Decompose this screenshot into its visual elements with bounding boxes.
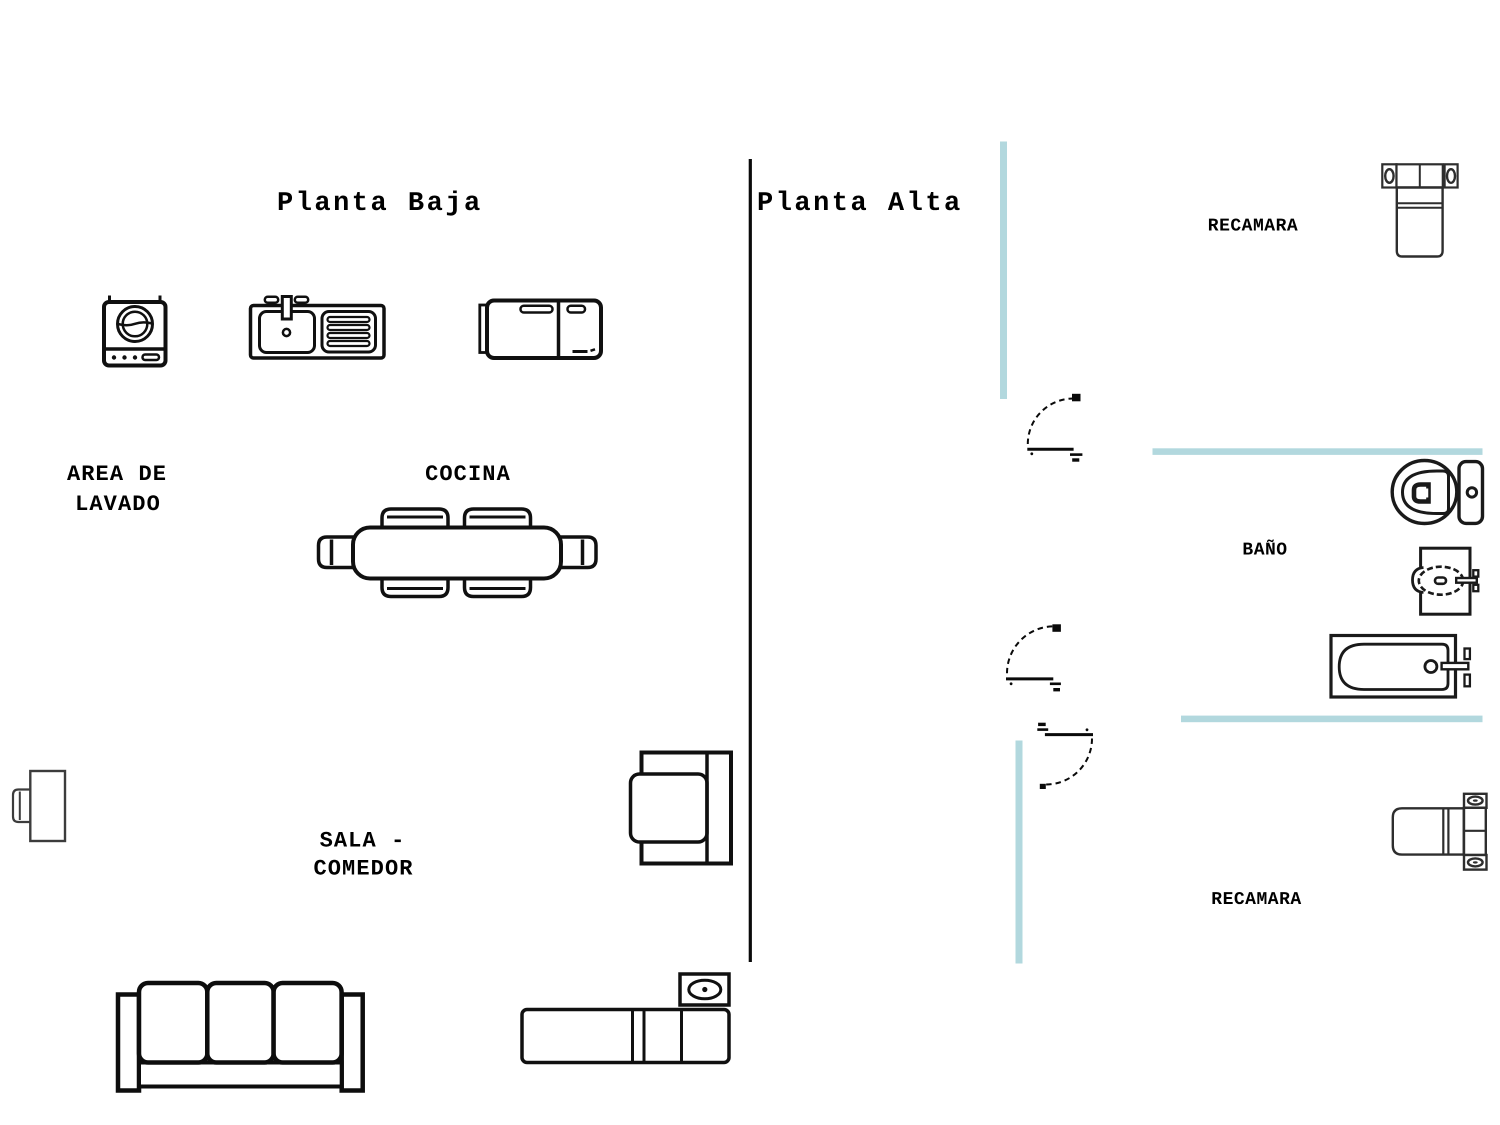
svg-text:COMEDOR: COMEDOR: [313, 857, 413, 882]
svg-text:RECAMARA: RECAMARA: [1208, 217, 1298, 237]
svg-text:AREA DE: AREA DE: [67, 462, 167, 487]
svg-text:RECAMARA: RECAMARA: [1211, 890, 1301, 910]
svg-text:COCINA: COCINA: [425, 462, 511, 487]
svg-text:Planta Baja: Planta Baja: [277, 189, 483, 219]
svg-text:Planta Alta: Planta Alta: [757, 189, 963, 219]
svg-text:BAÑO: BAÑO: [1242, 540, 1287, 561]
svg-text:SALA -: SALA -: [320, 829, 406, 854]
svg-text:LAVADO: LAVADO: [75, 492, 161, 517]
